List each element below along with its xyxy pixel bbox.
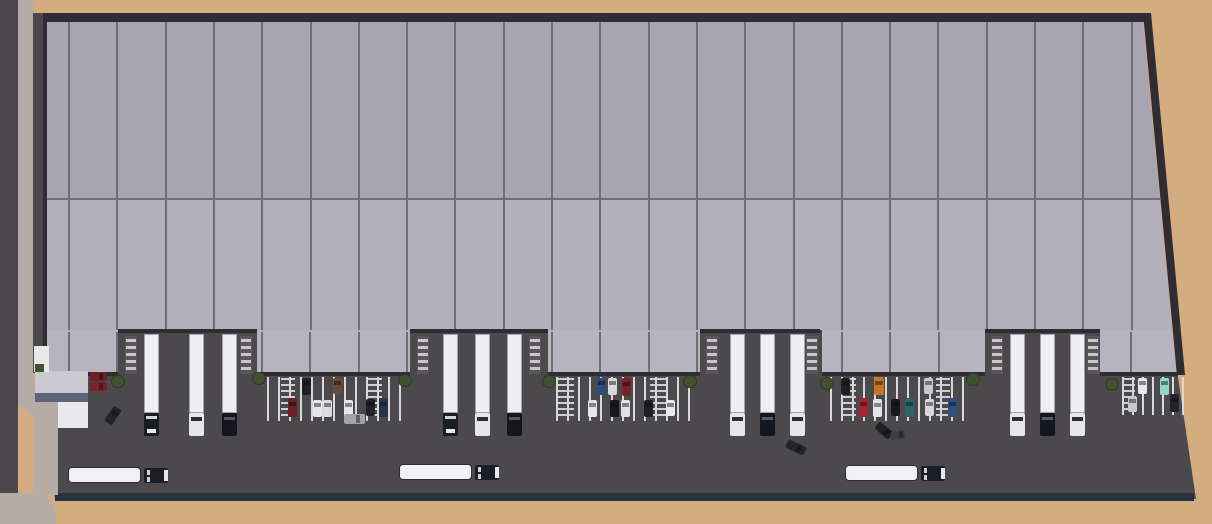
warehouse-aerial-render: [0, 0, 1212, 524]
cab-window: [147, 470, 150, 475]
cab-window: [478, 467, 481, 472]
trailer: [399, 464, 472, 480]
road-trucks: [0, 0, 1212, 524]
semi-truck-on-road: [68, 466, 172, 484]
cab-window: [478, 474, 481, 479]
semi-truck-on-road: [399, 463, 503, 481]
cab-bumper: [164, 470, 168, 481]
semi-truck-on-road: [845, 464, 949, 482]
cab-bumper: [941, 468, 945, 479]
cab-window: [924, 475, 927, 480]
cab-bumper: [495, 467, 499, 478]
trailer: [845, 465, 918, 481]
cab-window: [147, 477, 150, 482]
trailer: [68, 467, 141, 483]
cab-window: [924, 468, 927, 473]
